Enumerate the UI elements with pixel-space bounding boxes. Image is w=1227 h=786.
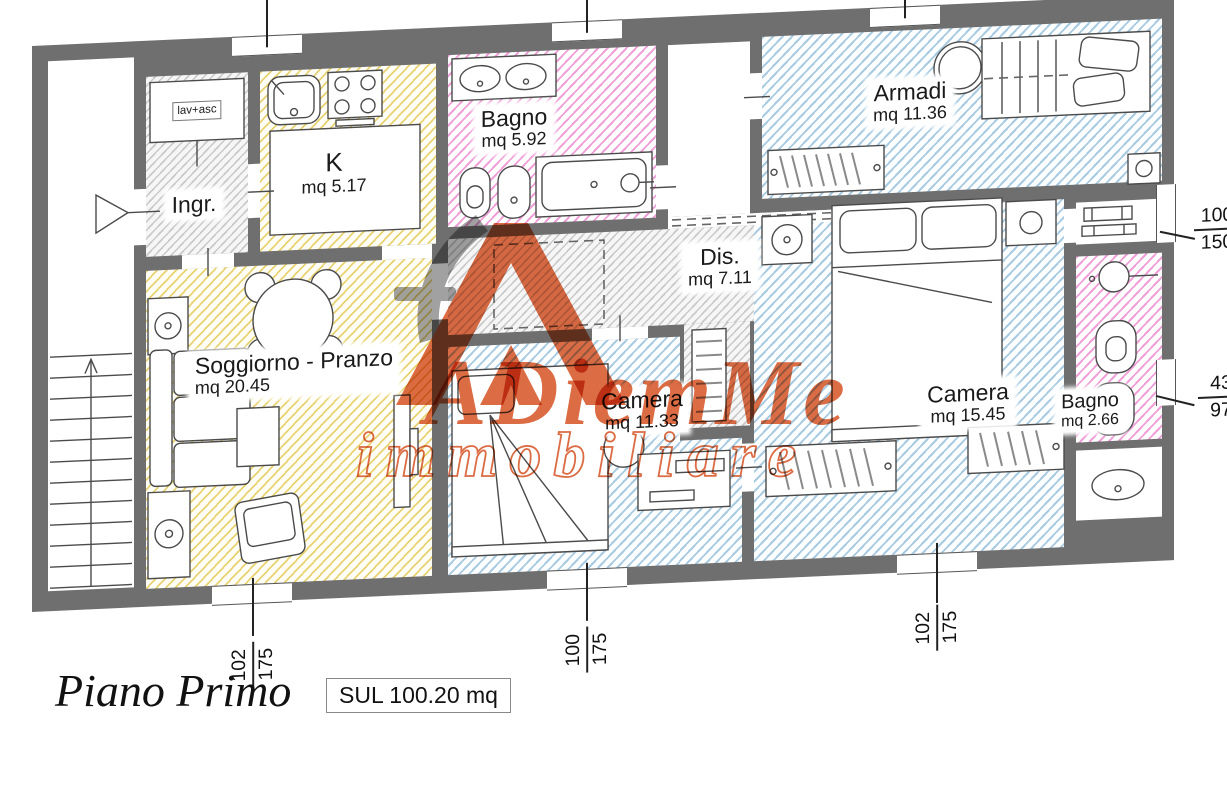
floor-plan: lav+asc Ingr. K mq 5.17 Bagno mq 5.92 Ar…	[32, 0, 1174, 612]
room-camera-1-alcove	[680, 438, 742, 565]
room-name: lav+asc	[177, 103, 216, 117]
room-label-cucina: K mq 5.17	[296, 145, 371, 199]
door-camera-2	[742, 443, 754, 492]
room-name: Ingr.	[172, 191, 217, 218]
room-armadi	[762, 19, 1162, 199]
room-area: mq 2.66	[1061, 411, 1119, 431]
room-label-lav-asc: lav+asc	[172, 100, 221, 121]
dimension-right-small-window: 43 97	[1198, 371, 1227, 423]
room-camera-1	[448, 337, 680, 576]
room-stairwell	[48, 57, 134, 591]
door-bagno-1	[656, 165, 668, 210]
dim-tick	[252, 578, 254, 636]
dim-tick	[904, 0, 906, 18]
room-area: mq 5.17	[301, 175, 366, 198]
sul-area-box: SUL 100.20 mq	[326, 678, 511, 713]
dim-separator	[586, 627, 588, 673]
dimension-right-window: 100 150	[1194, 203, 1227, 255]
dim-separator	[936, 605, 938, 651]
dim-tick	[586, 563, 588, 621]
dim-tick	[586, 0, 588, 33]
room-label-bagno-1: Bagno mq 5.92	[476, 103, 553, 154]
door-armadi	[750, 73, 762, 120]
dim-width: 43	[1210, 372, 1227, 396]
room-name: Bagno	[1061, 389, 1119, 414]
room-anteroom	[1076, 199, 1162, 245]
dim-height: 175	[939, 610, 962, 644]
room-bagno-2-niche	[1076, 447, 1162, 521]
room-label-camera-2: Camera mq 15.45	[922, 378, 1014, 429]
dim-width: 102	[912, 612, 935, 646]
dim-tick	[936, 543, 938, 603]
door-ingresso-cucina	[248, 164, 260, 219]
dim-width: 100	[1201, 203, 1227, 227]
room-label-camera-1: Camera mq 11.33	[596, 385, 688, 436]
room-area: mq 5.92	[481, 129, 548, 152]
room-area: mq 7.11	[688, 268, 752, 291]
door-cucina-soggiorno	[382, 244, 432, 260]
room-area: mq 15.45	[927, 404, 1009, 428]
door-anteroom	[1064, 209, 1076, 244]
room-camera-2	[754, 199, 1064, 561]
room-name: K	[301, 147, 366, 179]
floor-title: Piano Primo	[55, 664, 291, 717]
door-soggiorno-dis	[432, 263, 448, 320]
door-ingresso-soggiorno	[182, 253, 234, 269]
room-label-soggiorno: Soggiorno - Pranzo mq 20.45	[190, 344, 398, 401]
room-area: mq 11.33	[601, 411, 683, 435]
door-stairs-ingresso	[134, 189, 146, 246]
dim-height: 150	[1201, 230, 1227, 254]
room-label-disimpegno: Dis. mq 7.11	[683, 242, 757, 292]
dim-tick	[266, 0, 268, 47]
door-camera-1	[592, 326, 648, 341]
dimension-bottom-window-3: 102 175	[912, 604, 962, 652]
dim-height: 97	[1210, 398, 1227, 422]
room-area: mq 11.36	[873, 103, 947, 126]
room-label-bagno-2: Bagno mq 2.66	[1056, 388, 1124, 433]
dim-width: 100	[562, 633, 585, 667]
dimension-bottom-window-2: 100 175	[562, 625, 612, 673]
room-soggiorno	[146, 258, 432, 589]
dim-height: 175	[589, 632, 612, 666]
room-ingresso	[146, 72, 248, 257]
room-disimpegno-corridor	[684, 321, 750, 428]
room-label-armadi: Armadi mq 11.36	[868, 77, 952, 128]
room-corridor	[668, 41, 750, 217]
room-label-ingresso: Ingr.	[167, 190, 222, 220]
